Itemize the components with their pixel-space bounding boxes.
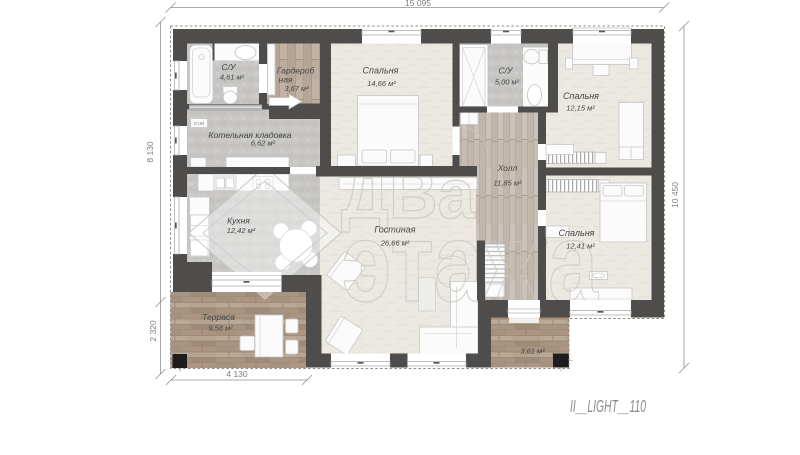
svg-text:5,00 м²: 5,00 м² <box>495 78 520 87</box>
svg-text:12,42 м²: 12,42 м² <box>227 226 256 235</box>
svg-text:10 450: 10 450 <box>670 182 680 208</box>
svg-text:С/У: С/У <box>499 66 515 76</box>
svg-text:8 130: 8 130 <box>145 141 155 163</box>
svg-text:14,66 м²: 14,66 м² <box>367 79 396 88</box>
svg-text:9,58 м²: 9,58 м² <box>208 324 233 333</box>
svg-text:2 320: 2 320 <box>148 320 158 342</box>
svg-text:3,67 м²: 3,67 м² <box>284 84 309 93</box>
svg-text:II__LIGHT__110: II__LIGHT__110 <box>570 396 646 416</box>
svg-text:С/У: С/У <box>222 62 238 72</box>
svg-text:11,85 м²: 11,85 м² <box>494 179 522 188</box>
svg-text:Терраса: Терраса <box>202 312 235 322</box>
svg-text:Гостиная: Гостиная <box>374 225 415 235</box>
svg-text:26,66 м²: 26,66 м² <box>380 239 410 248</box>
svg-text:ная: ная <box>279 75 293 85</box>
svg-text:12,41 м²: 12,41 м² <box>566 242 595 251</box>
svg-text:12,15 м²: 12,15 м² <box>566 104 595 113</box>
svg-text:Спальня: Спальня <box>563 91 599 101</box>
svg-text:3,61 м²: 3,61 м² <box>520 347 545 356</box>
svg-text:Спальня: Спальня <box>559 228 595 238</box>
svg-text:Спальня: Спальня <box>363 66 399 76</box>
svg-text:4 130: 4 130 <box>226 369 248 379</box>
svg-text:Кухня: Кухня <box>227 216 250 226</box>
svg-text:6,62 м²: 6,62 м² <box>251 139 276 148</box>
svg-text:15 095: 15 095 <box>405 0 431 8</box>
svg-text:Ст.М: Ст.М <box>194 121 204 126</box>
svg-text:4,61 м²: 4,61 м² <box>220 73 245 82</box>
svg-text:Холл: Холл <box>497 163 518 173</box>
